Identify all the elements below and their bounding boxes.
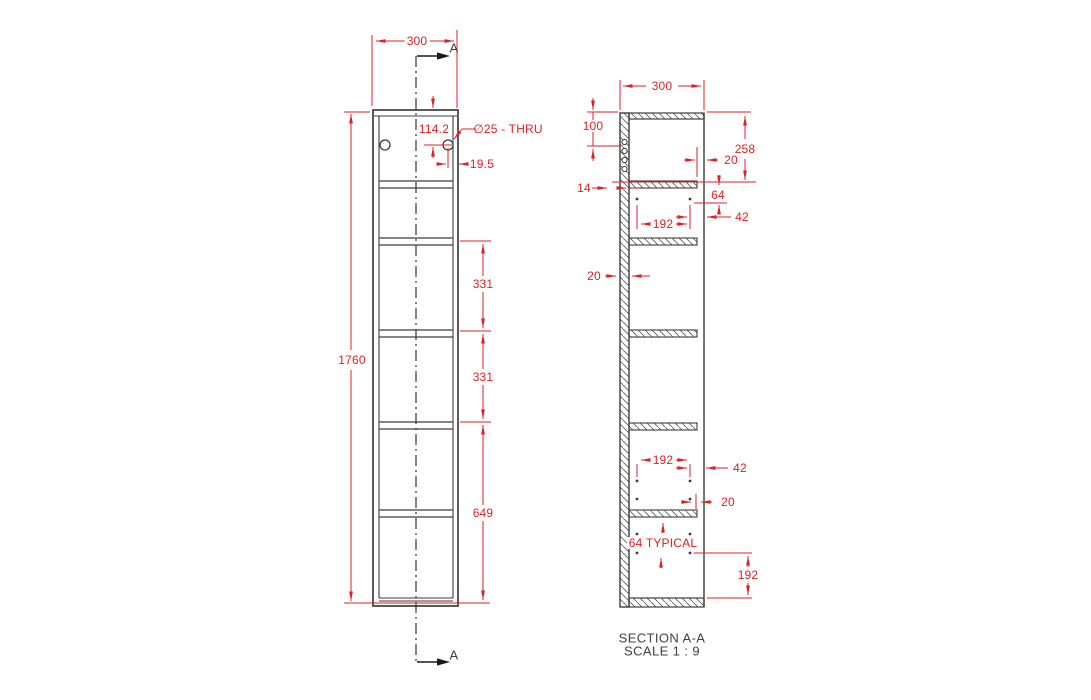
dim-front-height: 1760 <box>336 354 368 366</box>
dim-front-setback-bottom: 20 <box>721 496 735 508</box>
dim-section-depth: 300 <box>650 80 675 92</box>
dim-shelf-pitch-1: 331 <box>471 278 496 290</box>
dim-wall-thickness: 20 <box>587 270 601 282</box>
section-label-bottom: A <box>449 649 458 662</box>
dim-pin-span-bottom: 192 <box>651 454 676 466</box>
dim-bottom-to-holes: 192 <box>736 569 761 581</box>
dim-hole-from-edge: 19.5 <box>470 158 494 170</box>
dim-pin-to-front-top: 42 <box>735 211 749 223</box>
dim-back-lip: 14 <box>577 182 591 194</box>
dim-pin-to-front-bottom: 42 <box>733 462 747 474</box>
section-arrow-top <box>417 52 450 59</box>
dim-bottom-section: 649 <box>471 507 496 519</box>
dim-pin-span-top: 192 <box>651 218 676 230</box>
section-top-panel <box>629 113 704 119</box>
section-back-wall <box>620 113 629 607</box>
front-view <box>373 52 458 665</box>
hole-callout: ∅25 - THRU <box>473 123 543 135</box>
dim-front-setback-top: 20 <box>724 154 738 166</box>
dim-pin-offset-top: 64 <box>709 189 727 201</box>
dim-top-to-holes: 100 <box>581 120 606 132</box>
section-scale: SCALE 1 : 9 <box>624 645 700 658</box>
section-arrow-bottom <box>417 658 450 665</box>
dim-front-width: 300 <box>405 35 430 47</box>
section-label-top: A <box>449 42 458 55</box>
drawing-linework <box>0 0 1091 700</box>
dim-shelf-pitch-2: 331 <box>471 371 496 383</box>
shelf-pin-dots <box>636 198 692 555</box>
section-bottom-panel <box>629 598 704 607</box>
dim-hole-from-top: 114.2 <box>419 123 449 135</box>
section-view <box>620 113 704 607</box>
dim-pin-pitch-typical: 64 TYPICAL <box>627 537 699 549</box>
engineering-drawing-sheet: 300 A 114.2 ∅25 - THRU 19.5 1760 331 331… <box>0 0 1091 700</box>
